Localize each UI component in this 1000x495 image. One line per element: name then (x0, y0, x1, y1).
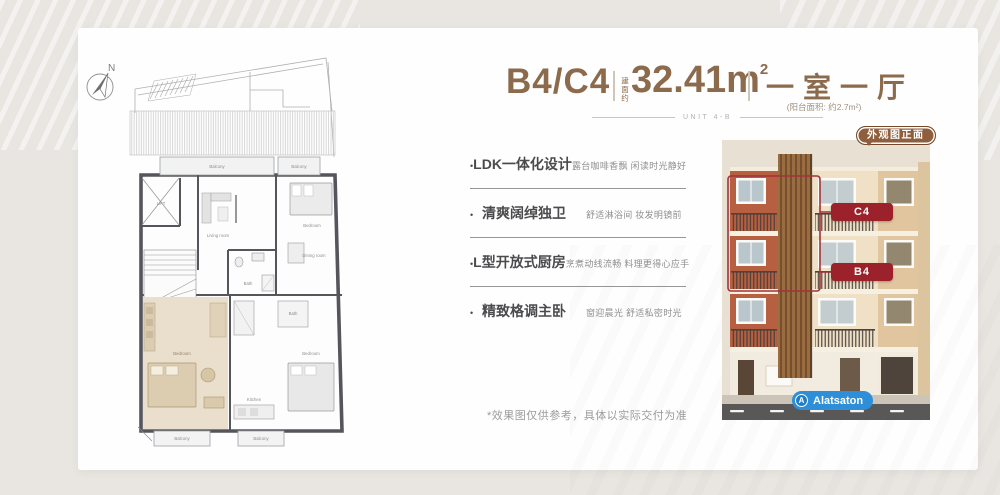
feature-desc: 烹煮动线流畅 料理更得心应手 (566, 257, 690, 270)
compass-n-label: N (108, 63, 115, 74)
svg-text:Dining room: Dining room (302, 253, 326, 258)
floor-plan-drawing: N Balcony Balcony (78, 45, 378, 460)
svg-text:Bedroom: Bedroom (302, 351, 320, 356)
svg-text:Balcony: Balcony (209, 164, 225, 169)
staircase (144, 250, 196, 305)
terrace-deck-hatch (130, 111, 335, 155)
brand-name: Alatsaton (813, 395, 863, 407)
svg-text:Bedroom: Bedroom (173, 351, 191, 356)
balcony-area-note: (阳台面积: 约2.7m²) (766, 101, 882, 113)
unit-line: UNIT 4-B (592, 114, 823, 121)
highlighted-unit: Bedroom (143, 297, 228, 429)
svg-text:Kitchen: Kitchen (247, 397, 262, 402)
svg-text:LIFT: LIFT (157, 201, 166, 206)
unit-badge-b4: B4 (831, 263, 893, 281)
svg-text:Living room: Living room (207, 233, 230, 238)
building-render (722, 140, 930, 420)
layout-name: 一室一厅 (766, 66, 914, 106)
feature-item: • LDK一体化设计 露台咖啡香飘 闲读时光静好 (470, 151, 686, 189)
feature-item: • 清爽阔绰独卫 舒适淋浴间 妆发明镜前 (470, 200, 686, 238)
feature-desc: 舒适淋浴间 妆发明镜前 (586, 208, 682, 221)
bullet-icon: • (470, 308, 482, 318)
header-divider (748, 71, 750, 101)
svg-text:Bath: Bath (289, 311, 298, 316)
header-divider (613, 71, 615, 101)
unit-badge-c4: C4 (831, 203, 893, 221)
feature-title: 清爽阔绰独卫 (482, 203, 586, 223)
disclaimer-text: *效果图仅供参考，具体以实际交付为准 (487, 407, 687, 423)
exterior-view-tag: 外观图正面 (856, 126, 936, 145)
svg-text:Balcony: Balcony (291, 164, 307, 169)
unit-line-text: UNIT 4-B (683, 114, 732, 121)
top-balconies: Balcony Balcony (160, 157, 320, 175)
north-compass-icon: N (87, 63, 115, 100)
page-background: N Balcony Balcony (0, 0, 1000, 495)
divider-line (740, 117, 823, 118)
feature-desc: 露台咖啡香飘 闲读时光静好 (572, 159, 686, 172)
feature-title: 精致格调主卧 (482, 301, 586, 321)
bullet-icon: • (470, 210, 482, 220)
svg-text:Bedroom: Bedroom (303, 223, 321, 228)
svg-text:Balcony: Balcony (174, 436, 190, 441)
brand-logo-icon: A (795, 394, 808, 407)
feature-item: • L型开放式厨房 烹煮动线流畅 料理更得心应手 (470, 249, 686, 287)
wood-slat-feature (778, 154, 812, 378)
feature-title: L型开放式厨房 (473, 252, 566, 272)
brand-pill: A Alatsaton (792, 391, 873, 410)
feature-list: • LDK一体化设计 露台咖啡香飘 闲读时光静好 • 清爽阔绰独卫 舒适淋浴间 … (470, 151, 686, 346)
svg-text:Bath: Bath (244, 281, 253, 286)
unit-code-title: B4/C4 (506, 62, 610, 102)
area-prefix-label: 建面约 (621, 77, 629, 103)
svg-text:Balcony: Balcony (253, 436, 269, 441)
divider-line (592, 117, 675, 118)
feature-title: LDK一体化设计 (473, 154, 572, 174)
exterior-photo: 外观图正面 C4 B4 A Alatsaton (722, 140, 930, 420)
site-hatch-detail (148, 74, 196, 101)
feature-desc: 窗迎晨光 舒适私密时光 (586, 306, 682, 319)
feature-item: • 精致格调主卧 窗迎晨光 舒适私密时光 (470, 298, 686, 335)
